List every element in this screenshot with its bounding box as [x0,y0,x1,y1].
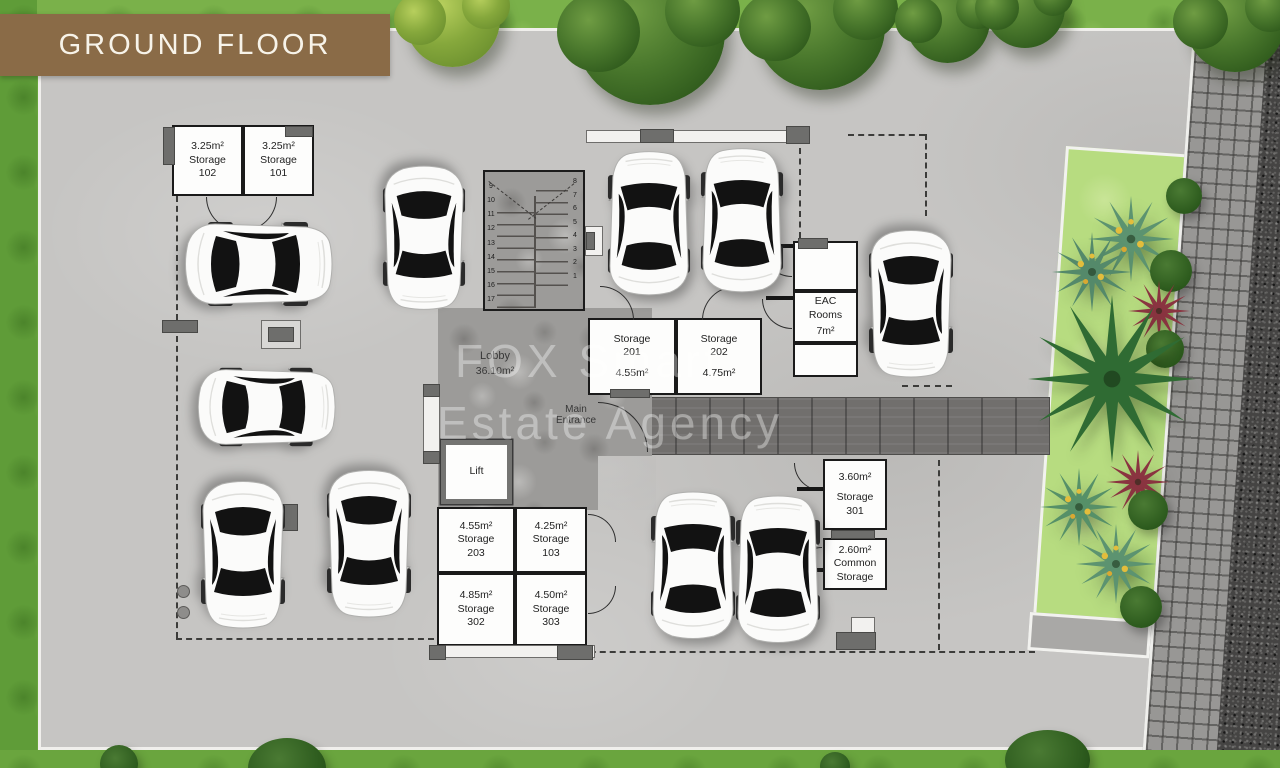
room-area: 3.25m² [262,140,295,154]
parking-dash-line [848,134,925,136]
garden-bush [1166,178,1202,214]
stair-step-number: 7 [570,192,580,199]
room-type: Storage [533,603,570,617]
entrance-walkway [640,397,1050,455]
room-area: 2.60m² [839,544,872,558]
stair-step-number: 12 [486,225,496,232]
parking-dash-line [902,385,952,387]
lobby-label: Lobby 36.10m² [452,350,538,377]
parking-dash-line [925,134,927,216]
room-lift: Lift [441,440,512,504]
large-palm [1028,295,1196,463]
room-number: 102 [199,167,217,181]
room-area: 4.50m² [535,589,568,603]
room-storage-102: 3.25m² Storage 102 [172,125,243,196]
parking-dash-line [176,638,434,640]
room-storage-203: 4.55m² Storage 203 [437,507,515,573]
parking-dash-line [938,460,940,650]
concrete-patch [598,456,656,510]
stair-step-number: 17 [486,296,496,303]
room-storage-303: 4.50m² Storage 303 [515,573,587,646]
wall-block [423,451,440,464]
room-number: 301 [846,505,864,519]
room-area: 4.75m² [703,367,736,381]
stair-step-number: 4 [570,232,580,239]
room-area: 4.85m² [460,589,493,603]
wall-block [640,129,674,143]
wall-block [163,127,175,165]
room-eac-lower [793,343,858,377]
room-number: 103 [542,547,560,561]
room-number: 203 [467,547,485,561]
room-storage-201: Storage 201 4.55m² [588,318,676,395]
lobby-area-value: 36.10m² [452,365,538,377]
room-number: 201 [623,346,641,360]
parked-car [649,488,737,644]
stair-numbers-right: 87654321 [570,178,580,280]
walkway-end-block [836,632,876,650]
room-type: Storage [260,154,297,168]
parked-car [199,477,287,631]
room-number: 101 [270,167,288,181]
room-storage-103: 4.25m² Storage 103 [515,507,587,573]
wall-block [610,389,650,398]
room-storage-202: Storage 202 4.75m² [676,318,762,395]
room-area: 4.25m² [535,520,568,534]
stair-step-number: 14 [486,254,496,261]
garden-bush [1120,586,1162,628]
north-wall [586,130,806,143]
stair-step-number: 9 [486,183,496,190]
bollard [177,585,190,598]
parking-dash-line [799,148,801,238]
stair-step-number: 15 [486,268,496,275]
wall-block [798,238,828,249]
room-type: Storage [189,154,226,168]
room-name: Lift [469,465,483,479]
room-name: EAC [815,295,837,309]
bollard [177,606,190,619]
room-area: 3.25m² [191,140,224,154]
room-area: 4.55m² [460,520,493,534]
stair-step-number: 1 [570,273,580,280]
room-name: Storage [837,571,874,585]
wheel-stop [162,320,198,333]
floor-banner-title: GROUND FLOOR [59,29,332,62]
parked-car [699,145,785,297]
parked-car [196,363,336,451]
parked-car [381,162,467,312]
room-common-storage: 2.60m² Common Storage [823,538,887,590]
stair-step-number: 13 [486,240,496,247]
wall-block [786,126,810,144]
parking-dash-line [176,196,178,320]
room-number: 202 [710,346,728,360]
stair-side-block [586,232,595,250]
room-number: 302 [467,616,485,630]
room-eac: EAC Rooms 7m² [793,291,858,343]
stair-step-number: 6 [570,205,580,212]
lobby-name: Lobby [452,350,538,362]
room-storage-302: 4.85m² Storage 302 [437,573,515,646]
room-area: 3.60m² [839,471,872,485]
stair-steps-right [536,190,568,286]
wall-block [429,645,446,660]
room-storage-301: 3.60m² Storage 301 [823,459,887,530]
parked-car [325,466,413,620]
wall-block [423,384,440,397]
stair-step-number: 11 [486,211,496,218]
room-type: Storage [701,333,738,347]
stair-step-number: 16 [486,282,496,289]
column-block [268,327,294,342]
stair-step-number: 2 [570,259,580,266]
parked-car [867,221,955,385]
room-type: Storage [458,603,495,617]
stair-numbers-left: 91011121314151617 [486,183,496,303]
stair-step-number: 5 [570,219,580,226]
wall-block [285,126,313,137]
parked-car [183,220,333,308]
site-plan: 91011121314151617 87654321 3.25m² Storag… [0,0,1280,768]
room-area: 4.55m² [616,367,649,381]
wall-block [831,530,875,539]
room-name: Rooms [809,309,842,323]
room-type: Storage [458,533,495,547]
room-area: 7m² [816,325,834,339]
stair-steps-left [497,212,534,308]
room-name: Common [834,557,877,571]
stair-step-number: 8 [570,178,580,185]
room-type: Storage [614,333,651,347]
room-type: Storage [533,533,570,547]
wall-block [557,645,593,660]
grass-strip-left [0,0,37,768]
floor-banner: GROUND FLOOR [0,14,390,76]
room-type: Storage [837,491,874,505]
room-number: 303 [542,616,560,630]
stair-step-number: 3 [570,246,580,253]
parked-car [734,491,822,649]
parked-car [606,149,692,299]
stair-step-number: 10 [486,197,496,204]
